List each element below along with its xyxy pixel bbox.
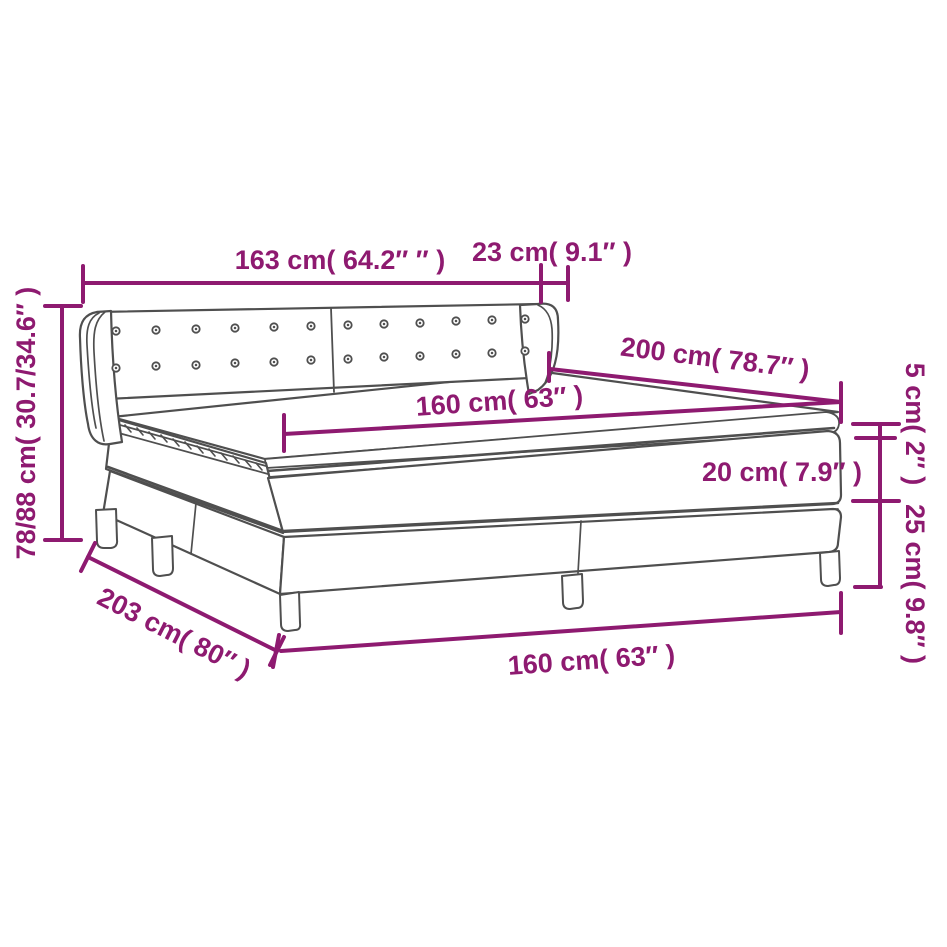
upholstery-button <box>231 324 238 331</box>
dimension-diagram: 163 cm( 64.2″ ″ ) 23 cm( 9.1″ ) 78/88 cm… <box>0 0 947 947</box>
leg-mid-left <box>152 536 173 576</box>
upholstery-button <box>270 358 277 365</box>
upholstery-button <box>192 361 199 368</box>
upholstery-button <box>112 364 119 371</box>
label-mattress-length: 200 cm( 78.7″ ) <box>619 332 811 385</box>
upholstery-button <box>152 362 159 369</box>
upholstery-button <box>231 359 238 366</box>
upholstery-button <box>152 326 159 333</box>
dim-line <box>281 612 841 651</box>
upholstery-button <box>380 320 387 327</box>
label-base-length: 203 cm( 80″ ) <box>93 582 256 685</box>
upholstery-button <box>488 316 495 323</box>
upholstery-button <box>307 356 314 363</box>
upholstery-button <box>452 350 459 357</box>
bed-dimension-drawing: 163 cm( 64.2″ ″ ) 23 cm( 9.1″ ) 78/88 cm… <box>0 0 947 947</box>
upholstery-button <box>488 349 495 356</box>
dim-total-height <box>45 306 81 540</box>
leg-back-left <box>96 509 117 548</box>
label-topper-height: 5 cm( 2″ ) <box>900 363 930 485</box>
dim-height-stack <box>853 424 899 587</box>
label-headboard-side-depth: 23 cm( 9.1″ ) <box>472 237 632 267</box>
upholstery-button <box>452 317 459 324</box>
upholstery-button <box>521 347 528 354</box>
label-mattress-height: 20 cm( 7.9″ ) <box>702 457 862 487</box>
label-total-height: 78/88 cm( 30.7/34.6″ ) <box>11 287 41 560</box>
upholstery-button <box>416 319 423 326</box>
upholstery-button <box>521 315 528 322</box>
label-base-width: 160 cm( 63″ ) <box>507 639 676 681</box>
dim-tick <box>81 543 95 571</box>
upholstery-button <box>344 355 351 362</box>
upholstery-button <box>416 352 423 359</box>
upholstery-button <box>270 323 277 330</box>
label-base-height: 25 cm( 9.8″ ) <box>900 504 930 664</box>
upholstery-button <box>112 327 119 334</box>
leg-front-right <box>820 551 840 586</box>
leg-front-middle <box>562 574 583 609</box>
upholstery-button <box>344 321 351 328</box>
upholstery-button <box>380 353 387 360</box>
label-headboard-width: 163 cm( 64.2″ ″ ) <box>235 245 445 275</box>
leg-front-left <box>280 592 300 631</box>
upholstery-button <box>307 322 314 329</box>
upholstery-button <box>192 325 199 332</box>
